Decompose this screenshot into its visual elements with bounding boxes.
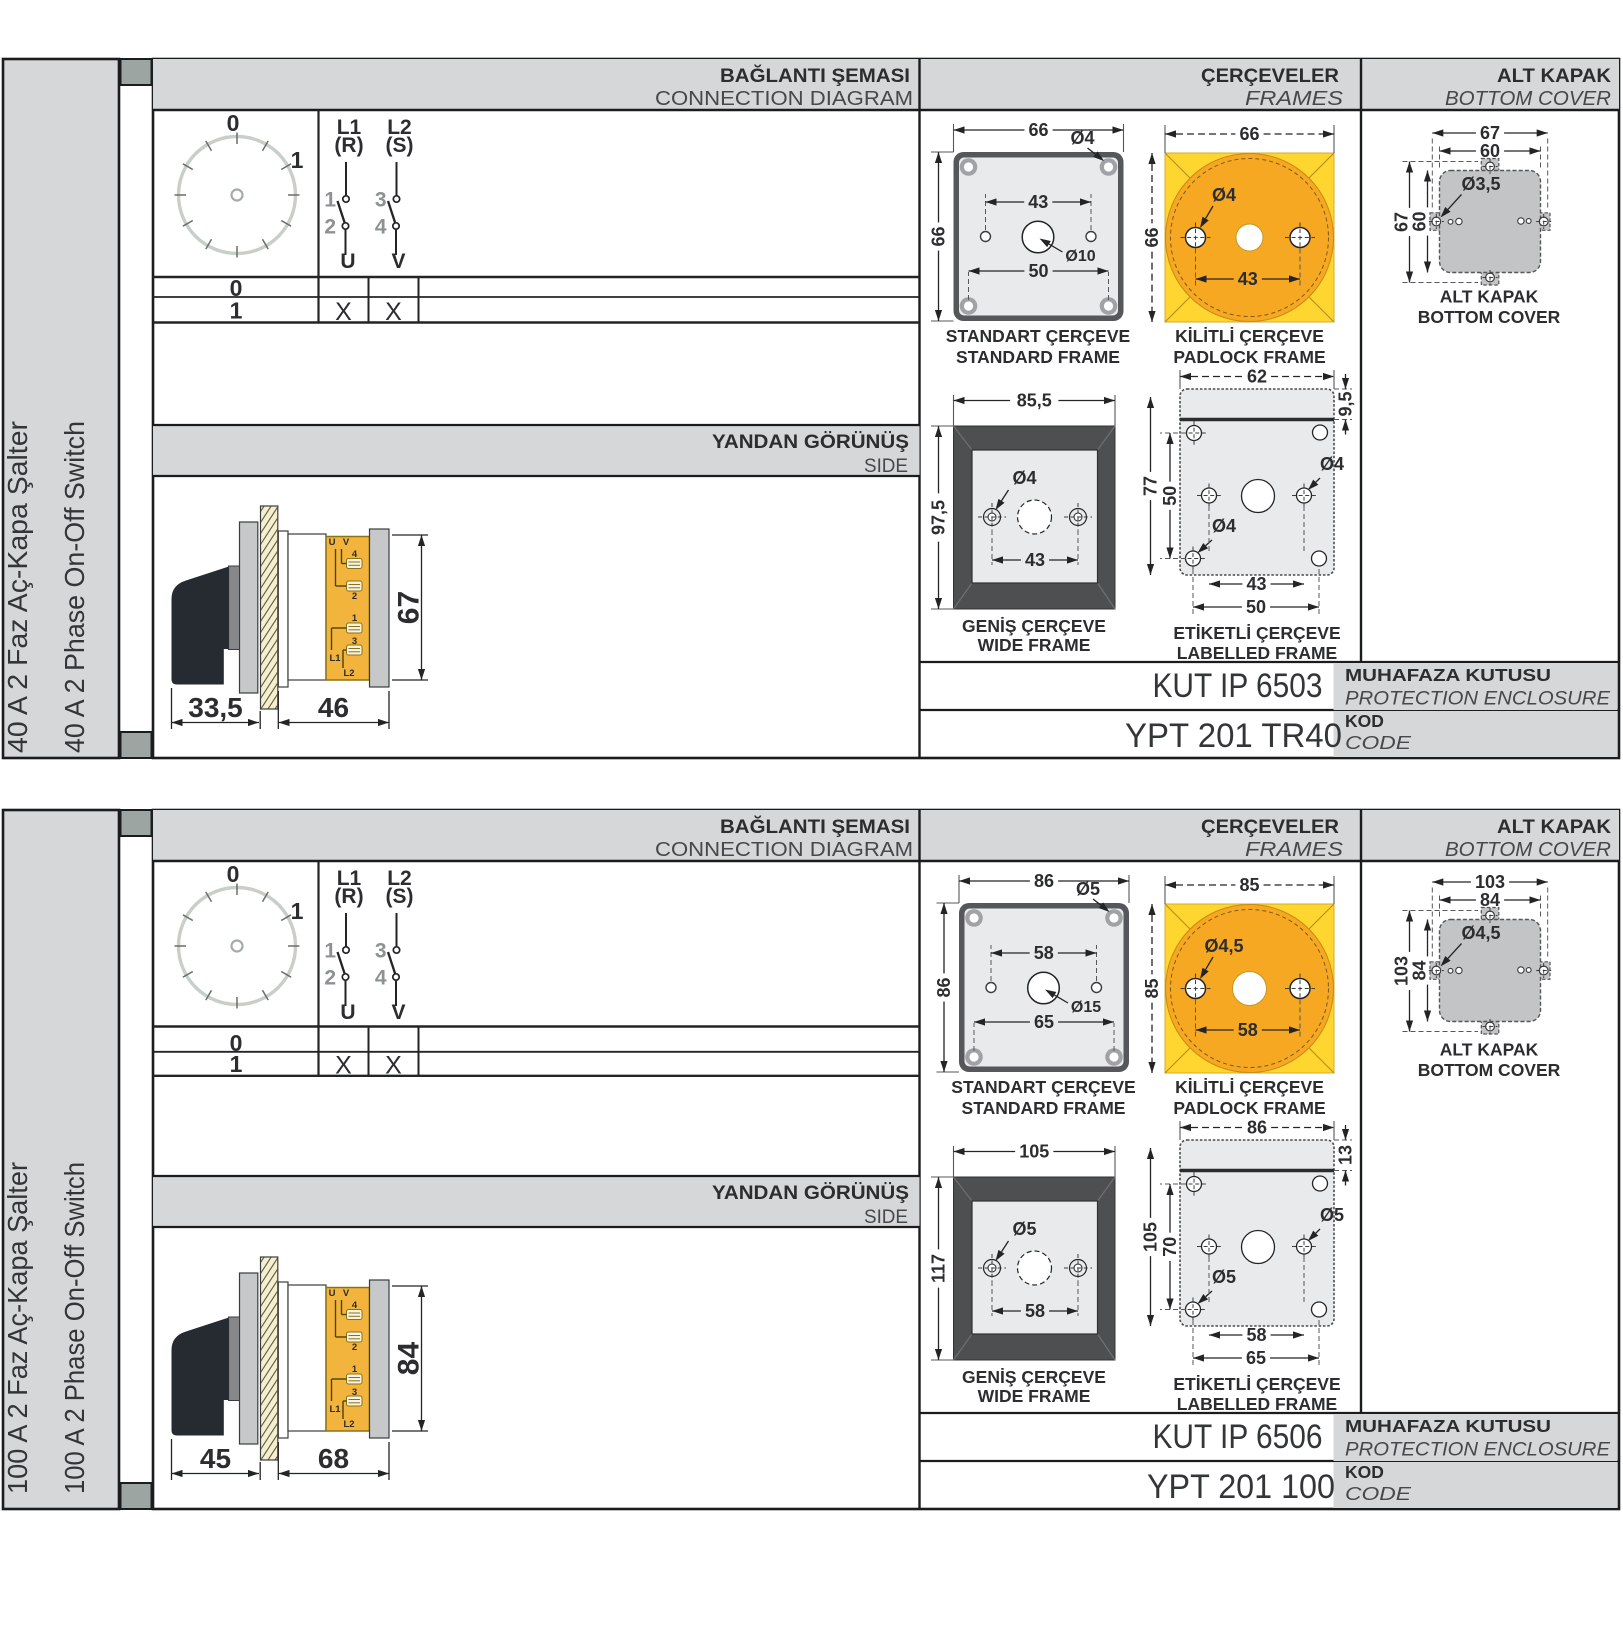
svg-text:117: 117 xyxy=(929,1254,949,1283)
svg-text:1: 1 xyxy=(230,1051,243,1077)
svg-text:ETİKETLİ ÇERÇEVE: ETİKETLİ ÇERÇEVE xyxy=(1173,623,1340,643)
svg-text:4: 4 xyxy=(375,966,387,989)
svg-text:3: 3 xyxy=(352,1387,357,1398)
svg-text:CONNECTION DIAGRAM: CONNECTION DIAGRAM xyxy=(655,87,913,110)
svg-text:X: X xyxy=(385,298,402,326)
svg-text:KUT IP 6503: KUT IP 6503 xyxy=(1153,667,1323,705)
svg-text:3: 3 xyxy=(375,939,387,962)
svg-text:50: 50 xyxy=(1028,261,1048,281)
svg-text:4: 4 xyxy=(352,549,358,560)
svg-text:43: 43 xyxy=(1238,269,1258,289)
svg-text:YPT 201 100: YPT 201 100 xyxy=(1147,1468,1335,1506)
svg-text:65: 65 xyxy=(1246,1348,1266,1368)
svg-text:1: 1 xyxy=(352,613,358,624)
svg-text:67: 67 xyxy=(393,591,426,624)
svg-text:YANDAN GÖRÜNÜŞ: YANDAN GÖRÜNÜŞ xyxy=(712,1181,909,1204)
svg-text:Ø3,5: Ø3,5 xyxy=(1461,174,1500,194)
svg-text:85,5: 85,5 xyxy=(1017,390,1052,410)
svg-text:MUHAFAZA KUTUSU: MUHAFAZA KUTUSU xyxy=(1345,665,1551,685)
svg-text:V: V xyxy=(343,1288,350,1299)
svg-text:BAĞLANTI ŞEMASI: BAĞLANTI ŞEMASI xyxy=(720,815,910,838)
svg-text:50: 50 xyxy=(1246,597,1266,617)
svg-text:103: 103 xyxy=(1392,956,1412,986)
svg-text:1: 1 xyxy=(291,147,304,173)
svg-text:1: 1 xyxy=(324,939,336,962)
svg-text:50: 50 xyxy=(1160,486,1180,506)
svg-text:KUT IP 6506: KUT IP 6506 xyxy=(1153,1418,1323,1456)
svg-text:Ø4: Ø4 xyxy=(1320,454,1344,474)
svg-text:40 A 2 Faz Aç-Kapa Şalter: 40 A 2 Faz Aç-Kapa Şalter xyxy=(2,421,33,753)
svg-text:WIDE FRAME: WIDE FRAME xyxy=(978,1386,1091,1406)
svg-text:KİLİTLİ ÇERÇEVE: KİLİTLİ ÇERÇEVE xyxy=(1175,326,1324,346)
svg-text:67: 67 xyxy=(1392,212,1412,232)
svg-text:FRAMES: FRAMES xyxy=(1245,87,1343,110)
svg-text:U: U xyxy=(340,250,355,273)
svg-text:84: 84 xyxy=(393,1342,426,1376)
svg-text:43: 43 xyxy=(1028,192,1048,212)
svg-text:86: 86 xyxy=(1247,1117,1267,1137)
svg-text:L2: L2 xyxy=(343,1419,354,1430)
svg-text:66: 66 xyxy=(1028,120,1048,140)
svg-text:STANDART ÇERÇEVE: STANDART ÇERÇEVE xyxy=(946,326,1130,346)
svg-text:1: 1 xyxy=(291,898,304,924)
svg-text:86: 86 xyxy=(1034,871,1054,891)
svg-text:Ø15: Ø15 xyxy=(1071,999,1101,1016)
svg-text:PADLOCK FRAME: PADLOCK FRAME xyxy=(1173,1098,1325,1118)
svg-text:STANDARD FRAME: STANDARD FRAME xyxy=(956,347,1120,367)
svg-text:1: 1 xyxy=(324,188,336,211)
svg-text:45: 45 xyxy=(200,1443,231,1474)
svg-text:STANDART ÇERÇEVE: STANDART ÇERÇEVE xyxy=(951,1077,1135,1097)
svg-text:60: 60 xyxy=(1410,211,1430,231)
svg-text:70: 70 xyxy=(1160,1237,1180,1257)
svg-text:2: 2 xyxy=(324,966,336,989)
svg-text:Ø4: Ø4 xyxy=(1070,128,1094,148)
svg-text:BOTTOM COVER: BOTTOM COVER xyxy=(1445,838,1611,861)
svg-text:KOD: KOD xyxy=(1345,711,1384,731)
svg-text:67: 67 xyxy=(1480,123,1500,143)
svg-text:Ø10: Ø10 xyxy=(1065,248,1095,265)
svg-text:46: 46 xyxy=(318,692,349,723)
svg-text:GENİŞ ÇERÇEVE: GENİŞ ÇERÇEVE xyxy=(962,616,1106,636)
svg-text:60: 60 xyxy=(1480,141,1500,161)
svg-text:STANDARD FRAME: STANDARD FRAME xyxy=(962,1098,1126,1118)
svg-text:1: 1 xyxy=(230,298,243,324)
svg-text:58: 58 xyxy=(1025,1301,1045,1321)
svg-text:KİLİTLİ ÇERÇEVE: KİLİTLİ ÇERÇEVE xyxy=(1175,1077,1324,1097)
svg-text:62: 62 xyxy=(1247,366,1267,386)
svg-text:ÇERÇEVELER: ÇERÇEVELER xyxy=(1201,65,1339,87)
svg-text:40 A 2 Phase On-Off Switch: 40 A 2 Phase On-Off Switch xyxy=(59,421,90,753)
svg-text:X: X xyxy=(335,1051,352,1079)
svg-text:U: U xyxy=(329,537,336,548)
svg-text:Ø5: Ø5 xyxy=(1212,1267,1236,1287)
svg-text:YANDAN GÖRÜNÜŞ: YANDAN GÖRÜNÜŞ xyxy=(712,430,909,453)
svg-text:13: 13 xyxy=(1336,1145,1356,1165)
svg-text:105: 105 xyxy=(1019,1141,1049,1161)
svg-text:(S): (S) xyxy=(386,134,414,157)
svg-text:Ø5: Ø5 xyxy=(1012,1219,1036,1239)
svg-text:SIDE: SIDE xyxy=(864,455,908,477)
svg-text:PROTECTION ENCLOSURE: PROTECTION ENCLOSURE xyxy=(1345,689,1610,710)
svg-text:U: U xyxy=(329,1288,336,1299)
svg-text:PADLOCK FRAME: PADLOCK FRAME xyxy=(1173,347,1325,367)
svg-text:GENİŞ ÇERÇEVE: GENİŞ ÇERÇEVE xyxy=(962,1367,1106,1387)
svg-text:BOTTOM COVER: BOTTOM COVER xyxy=(1418,1060,1561,1080)
svg-text:V: V xyxy=(391,250,405,273)
svg-text:66: 66 xyxy=(1239,124,1259,144)
svg-text:(R): (R) xyxy=(334,885,363,908)
svg-text:0: 0 xyxy=(227,110,240,136)
svg-text:ALT KAPAK: ALT KAPAK xyxy=(1440,1040,1539,1060)
svg-text:2: 2 xyxy=(324,215,336,238)
svg-text:Ø4,5: Ø4,5 xyxy=(1461,923,1500,943)
svg-text:84: 84 xyxy=(1480,890,1500,910)
svg-text:85: 85 xyxy=(1142,978,1162,998)
svg-text:YPT 201 TR40: YPT 201 TR40 xyxy=(1125,717,1342,755)
svg-text:105: 105 xyxy=(1141,1222,1161,1252)
svg-text:ALT KAPAK: ALT KAPAK xyxy=(1440,287,1539,307)
svg-text:3: 3 xyxy=(375,188,387,211)
svg-text:Ø4: Ø4 xyxy=(1012,468,1036,488)
svg-text:L2: L2 xyxy=(343,668,354,679)
svg-text:ALT KAPAK: ALT KAPAK xyxy=(1497,816,1611,838)
svg-text:103: 103 xyxy=(1475,872,1505,892)
svg-text:V: V xyxy=(343,537,350,548)
svg-text:LABELLED FRAME: LABELLED FRAME xyxy=(1177,1394,1337,1414)
svg-text:58: 58 xyxy=(1238,1020,1258,1040)
svg-text:U: U xyxy=(340,1001,355,1024)
svg-text:1: 1 xyxy=(352,1364,358,1375)
svg-text:4: 4 xyxy=(352,1300,358,1311)
svg-text:ETİKETLİ ÇERÇEVE: ETİKETLİ ÇERÇEVE xyxy=(1173,1374,1340,1394)
svg-text:WIDE FRAME: WIDE FRAME xyxy=(978,635,1091,655)
svg-text:77: 77 xyxy=(1141,476,1161,496)
svg-text:43: 43 xyxy=(1246,574,1266,594)
svg-text:100 A 2 Phase On-Off Switch: 100 A 2 Phase On-Off Switch xyxy=(59,1162,90,1494)
svg-text:Ø5: Ø5 xyxy=(1320,1205,1344,1225)
svg-text:3: 3 xyxy=(352,636,357,647)
svg-text:X: X xyxy=(335,298,352,326)
svg-text:4: 4 xyxy=(375,215,387,238)
svg-text:(S): (S) xyxy=(386,885,414,908)
svg-text:ALT KAPAK: ALT KAPAK xyxy=(1497,65,1611,87)
svg-text:L1: L1 xyxy=(329,653,341,664)
svg-text:66: 66 xyxy=(929,226,949,246)
svg-text:Ø4: Ø4 xyxy=(1212,516,1236,536)
svg-text:65: 65 xyxy=(1034,1012,1054,1032)
svg-text:2: 2 xyxy=(352,591,357,602)
svg-text:33,5: 33,5 xyxy=(188,692,243,723)
svg-text:43: 43 xyxy=(1025,550,1045,570)
svg-text:68: 68 xyxy=(318,1443,349,1474)
svg-text:(R): (R) xyxy=(334,134,363,157)
svg-text:0: 0 xyxy=(227,861,240,887)
svg-text:58: 58 xyxy=(1034,943,1054,963)
svg-text:66: 66 xyxy=(1142,227,1162,247)
svg-text:85: 85 xyxy=(1239,875,1259,895)
svg-text:86: 86 xyxy=(934,977,954,997)
svg-text:CONNECTION DIAGRAM: CONNECTION DIAGRAM xyxy=(655,838,913,861)
svg-text:MUHAFAZA KUTUSU: MUHAFAZA KUTUSU xyxy=(1345,1416,1551,1436)
svg-text:9,5: 9,5 xyxy=(1336,391,1356,416)
svg-text:2: 2 xyxy=(352,1342,357,1353)
svg-text:SIDE: SIDE xyxy=(864,1206,908,1228)
svg-text:FRAMES: FRAMES xyxy=(1245,838,1343,861)
svg-text:V: V xyxy=(391,1001,405,1024)
svg-text:Ø4: Ø4 xyxy=(1212,185,1236,205)
svg-text:CODE: CODE xyxy=(1345,733,1412,753)
svg-text:CODE: CODE xyxy=(1345,1484,1412,1504)
svg-text:KOD: KOD xyxy=(1345,1462,1384,1482)
svg-text:BOTTOM COVER: BOTTOM COVER xyxy=(1418,307,1561,327)
svg-text:X: X xyxy=(385,1051,402,1079)
svg-text:Ø4,5: Ø4,5 xyxy=(1204,936,1243,956)
svg-text:BOTTOM COVER: BOTTOM COVER xyxy=(1445,87,1611,110)
svg-text:PROTECTION ENCLOSURE: PROTECTION ENCLOSURE xyxy=(1345,1440,1610,1461)
svg-text:97,5: 97,5 xyxy=(929,500,949,535)
svg-text:LABELLED FRAME: LABELLED FRAME xyxy=(1177,643,1337,663)
svg-text:Ø5: Ø5 xyxy=(1076,879,1100,899)
svg-text:L1: L1 xyxy=(329,1404,341,1415)
svg-text:84: 84 xyxy=(1410,960,1430,980)
svg-text:ÇERÇEVELER: ÇERÇEVELER xyxy=(1201,816,1339,838)
svg-text:BAĞLANTI ŞEMASI: BAĞLANTI ŞEMASI xyxy=(720,64,910,87)
svg-text:58: 58 xyxy=(1246,1325,1266,1345)
svg-text:100 A 2 Faz Aç-Kapa Şalter: 100 A 2 Faz Aç-Kapa Şalter xyxy=(2,1162,33,1494)
